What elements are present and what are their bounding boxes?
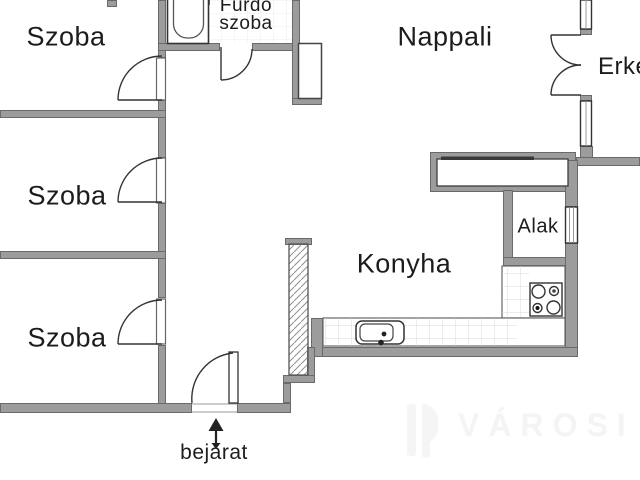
room-label-szoba-middle: Szoba xyxy=(27,181,106,212)
room-label-nappali: Nappali xyxy=(397,22,492,53)
entrance-label: bejárat xyxy=(180,441,248,465)
room-label-konyha: Konyha xyxy=(357,249,452,280)
labels-layer: Szoba Szoba Szoba Fürdő szoba Nappali Er… xyxy=(0,0,640,480)
floor-plan-canvas: { "title": "apartment-floor-plan", "labe… xyxy=(0,0,640,480)
bathroom-label-line2: szoba xyxy=(219,13,272,34)
room-label-szoba-bottom: Szoba xyxy=(27,323,106,354)
room-label-bathroom: Fürdő szoba xyxy=(219,0,272,33)
room-label-alak: Alak xyxy=(518,216,559,239)
room-label-erkely: Erké xyxy=(598,53,640,81)
room-label-szoba-top: Szoba xyxy=(26,22,105,53)
